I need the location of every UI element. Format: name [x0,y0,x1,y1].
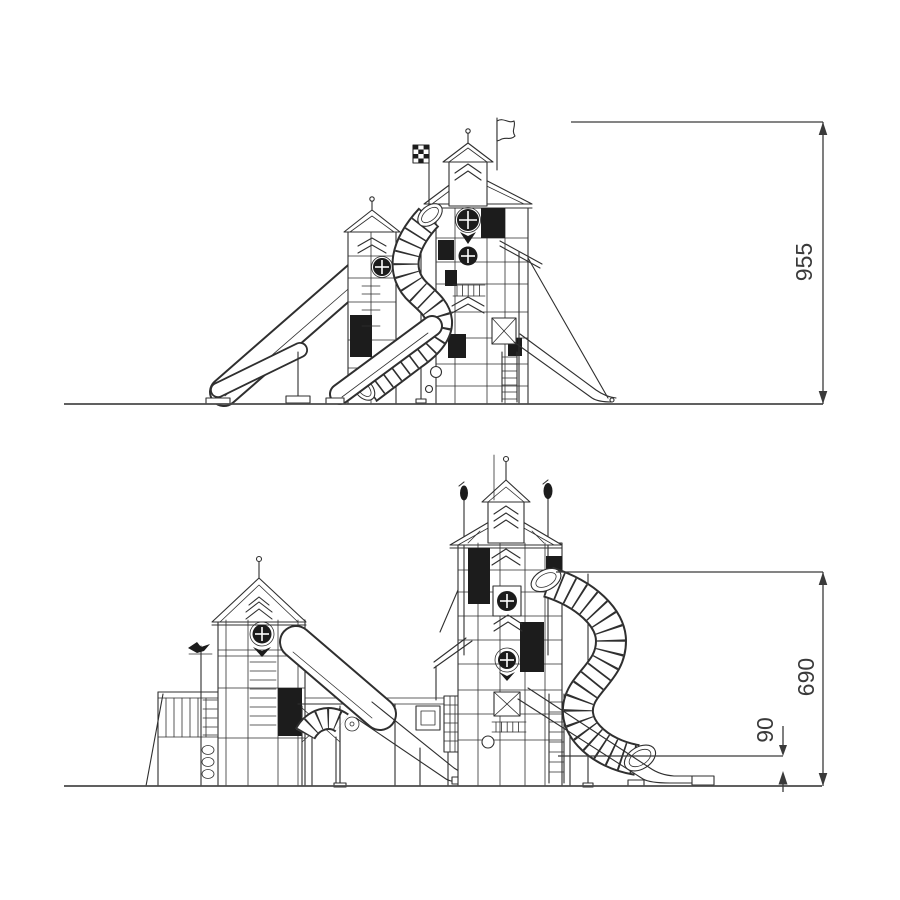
upper-elevation-view: 955 [64,118,827,404]
ground-offset-dimension-label: 90 [752,717,778,743]
arrow-down-icon [819,391,828,404]
post-foot [286,396,310,403]
elevation-drawing-canvas: 955 [0,0,900,900]
carved-finial-right [544,483,553,499]
arrow-up-icon [819,122,828,135]
carved-finial-left [460,486,468,501]
lower-left-tower [212,557,306,787]
upper-right-slide [514,334,616,402]
upper-central-tower [413,118,532,404]
arrow-down-icon [819,773,828,786]
arrow-up-icon [819,572,828,585]
upper-height-dimension-label: 955 [791,243,817,281]
lower-height-dimension-label: 690 [793,658,819,696]
crawl-tunnel [305,719,342,786]
checkered-flag [413,145,429,163]
dimension-955: 955 [571,122,827,404]
weathervane-bird [188,642,210,653]
lower-elevation-view: 690 90 [64,455,827,792]
arrow-down-icon [779,745,787,756]
banner-flag [497,120,515,141]
arrow-up-icon [779,771,788,785]
drawing-page: 955 [0,0,900,900]
spiral-climber [202,746,214,779]
